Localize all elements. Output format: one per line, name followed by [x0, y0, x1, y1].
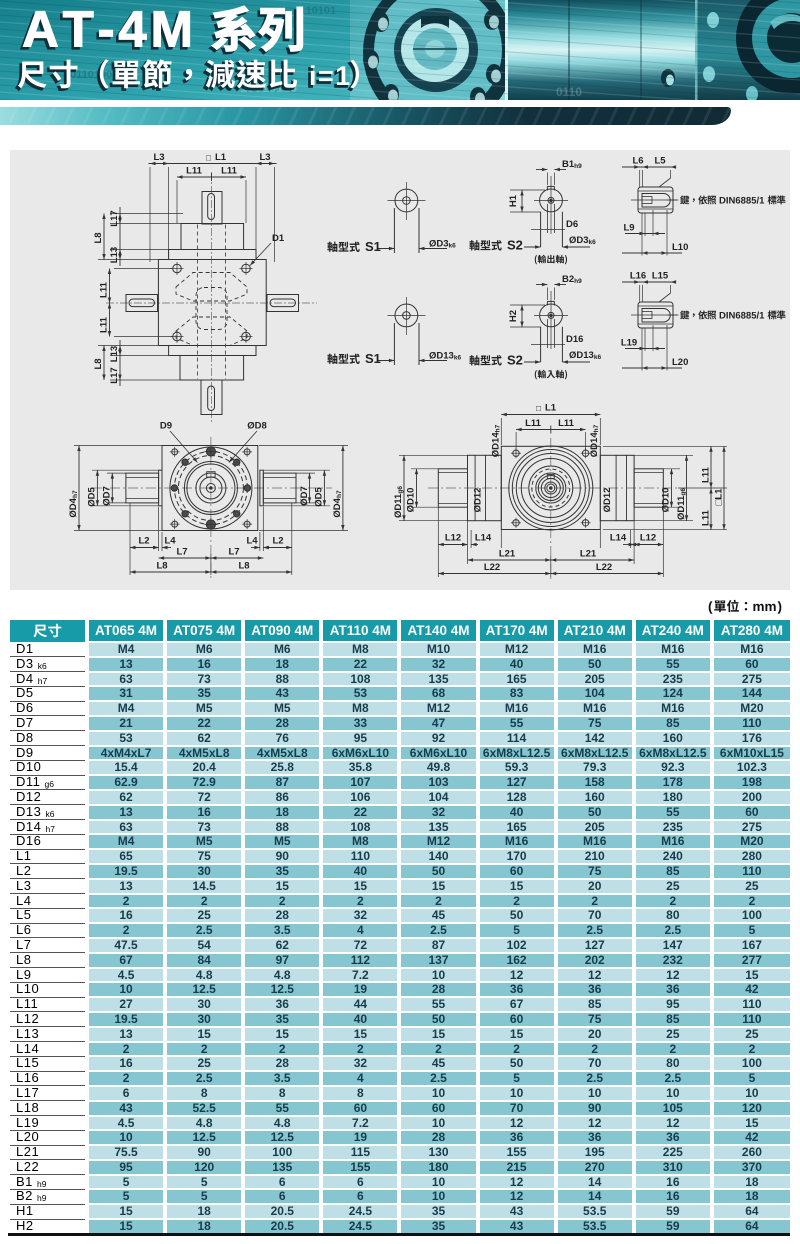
svg-text:D9: D9: [160, 421, 172, 432]
svg-text:L19: L19: [621, 338, 637, 349]
svg-text:ØD14h7: ØD14h7: [589, 424, 600, 457]
svg-text:B2h9: B2h9: [562, 274, 582, 285]
svg-text:L8: L8: [93, 358, 104, 369]
svg-text:L2: L2: [138, 536, 149, 547]
svg-text:L20: L20: [672, 357, 688, 368]
svg-text:ØD12: ØD12: [473, 488, 484, 513]
svg-text:L8: L8: [238, 561, 249, 572]
svg-text:L15: L15: [652, 271, 669, 282]
svg-text:H1: H1: [508, 194, 519, 207]
svg-text:L9: L9: [623, 223, 634, 234]
svg-text:L12: L12: [445, 533, 461, 544]
svg-text:D16: D16: [566, 334, 583, 345]
svg-text:L22: L22: [596, 562, 612, 573]
svg-text:0110100: 0110100: [70, 69, 112, 81]
svg-text:L22: L22: [484, 562, 500, 573]
svg-text:H2: H2: [508, 310, 519, 322]
svg-text:ØD13k6: ØD13k6: [429, 351, 461, 362]
svg-text:0110: 0110: [556, 85, 582, 99]
svg-text:L11: L11: [99, 281, 110, 298]
svg-text:S1: S1: [365, 351, 381, 366]
svg-text:L14: L14: [610, 533, 627, 544]
svg-text:L5: L5: [654, 156, 666, 167]
svg-text:ØD7: ØD7: [102, 486, 113, 506]
svg-text:L11: L11: [701, 466, 712, 483]
svg-text:ØD3k6: ØD3k6: [569, 235, 596, 246]
svg-text:L1: L1: [215, 152, 227, 163]
svg-text:L11: L11: [558, 418, 575, 429]
svg-text:L2: L2: [272, 536, 283, 547]
svg-text:L11: L11: [221, 166, 238, 177]
svg-text:L13: L13: [109, 247, 120, 263]
svg-text:ØD10: ØD10: [661, 488, 672, 513]
svg-text:L11: L11: [186, 166, 203, 177]
svg-text:B1h9: B1h9: [562, 159, 582, 170]
svg-text:L21: L21: [580, 549, 597, 560]
svg-text:L17: L17: [109, 367, 120, 383]
svg-text:L4: L4: [164, 536, 176, 547]
svg-text:L8: L8: [156, 561, 167, 572]
svg-text:L10: L10: [672, 242, 688, 253]
svg-text:L14: L14: [475, 533, 492, 544]
svg-text:ØD5: ØD5: [87, 487, 98, 507]
svg-text:□: □: [206, 153, 211, 163]
svg-text:D6: D6: [566, 219, 578, 230]
svg-text:L21: L21: [499, 549, 516, 560]
svg-text:ØD10: ØD10: [406, 488, 417, 513]
svg-text:L6: L6: [632, 156, 643, 167]
svg-text:ØD12: ØD12: [602, 488, 613, 513]
svg-text:ØD4h7: ØD4h7: [332, 490, 343, 518]
svg-text:L4: L4: [246, 536, 258, 547]
svg-text:110101: 110101: [300, 5, 336, 17]
svg-text:S2: S2: [507, 238, 523, 253]
svg-text:S2: S2: [507, 353, 523, 368]
svg-text:ØD11g6: ØD11g6: [393, 486, 404, 518]
svg-text:ØD4h7: ØD4h7: [68, 490, 79, 518]
svg-text:L11: L11: [701, 509, 712, 526]
svg-text:ØD3k6: ØD3k6: [429, 239, 456, 250]
svg-text:L1: L1: [545, 403, 557, 414]
svg-text:D1: D1: [272, 233, 285, 244]
svg-text:S1: S1: [365, 239, 381, 254]
svg-text:L13: L13: [109, 346, 120, 362]
svg-text:ØD8: ØD8: [247, 421, 267, 432]
svg-text:L12: L12: [640, 533, 656, 544]
svg-text:L11: L11: [525, 418, 542, 429]
svg-text:L8: L8: [93, 232, 104, 243]
svg-text:□: □: [536, 403, 541, 413]
svg-text:L7: L7: [228, 547, 239, 558]
svg-text:ØD11g6: ØD11g6: [676, 488, 687, 520]
svg-text:L16: L16: [630, 271, 646, 282]
svg-text:ØD5: ØD5: [314, 487, 325, 507]
svg-text:L7: L7: [176, 547, 187, 558]
svg-text:ØD7: ØD7: [299, 486, 310, 506]
svg-text:□L1: □L1: [714, 488, 725, 506]
svg-text:L3: L3: [259, 152, 270, 163]
svg-text:L11: L11: [99, 316, 110, 333]
svg-text:ØD13k6: ØD13k6: [569, 350, 601, 361]
svg-text:L17: L17: [109, 210, 120, 226]
svg-text:ØD14h7: ØD14h7: [491, 424, 502, 457]
svg-text:L3: L3: [153, 152, 164, 163]
